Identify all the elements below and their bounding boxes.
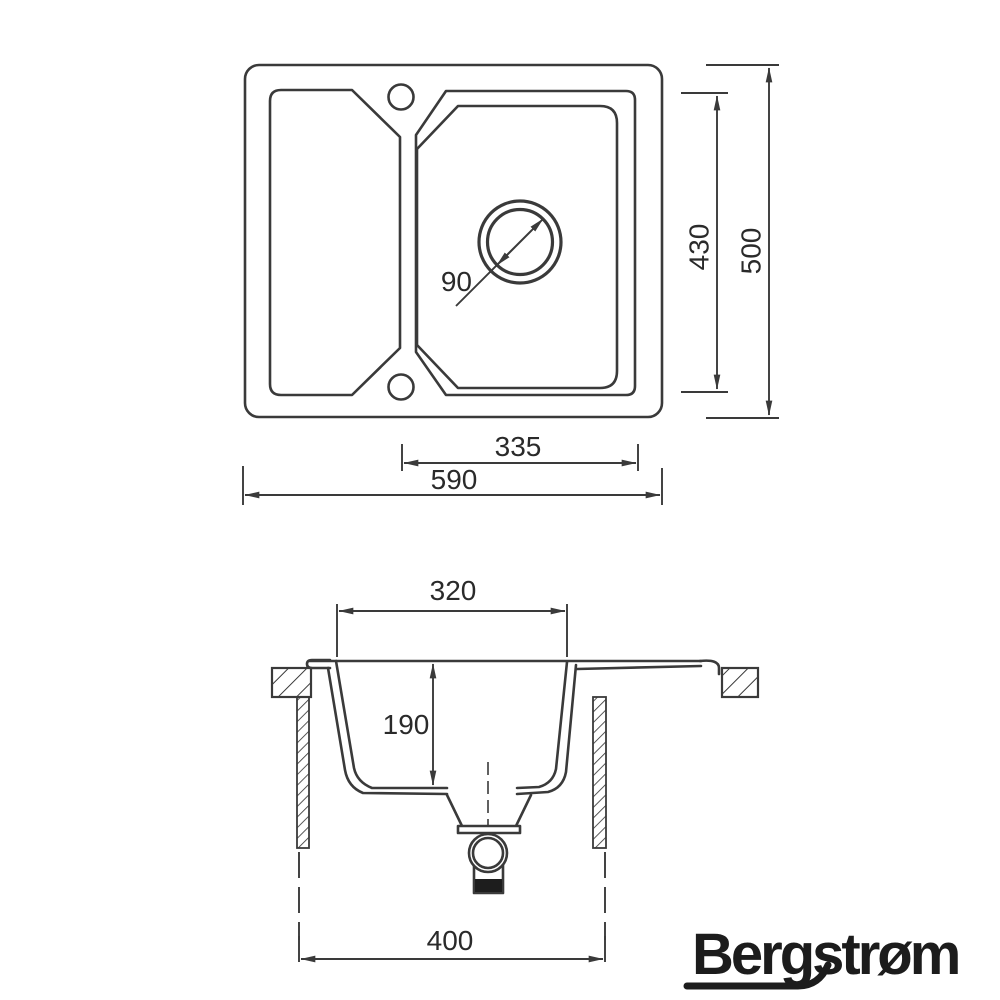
tap-hole-top [389,85,414,110]
dim-overall-width: 590 [243,464,662,505]
dim-bowl-width-label: 335 [495,431,542,462]
dim-drain-diameter-label: 90 [441,266,472,297]
siphon-cup-outer [469,834,507,872]
drawing-canvas: 90 430 500 335 590 [0,0,1000,1000]
sink-outer-edge [245,65,662,417]
cabinet-panel-left [297,697,309,848]
drain-assembly [447,795,531,893]
cabinet-panel-right [593,697,606,848]
dim-bowl-opening-label: 320 [430,575,477,606]
section-view: 320 190 400 [272,575,758,962]
brand-wordmark: Bergstrøm [692,922,958,987]
countertop-left [272,668,311,697]
dim-overall-width-label: 590 [431,464,478,495]
drainer-outline [270,90,400,395]
dim-bowl-depth: 190 [383,664,433,785]
dim-bowl-opening: 320 [337,575,567,657]
brand-logo: Bergstrøm [687,922,958,987]
strainer-flange [458,826,520,833]
tap-hole-bottom [389,375,414,400]
dim-bowl-length-label: 430 [684,224,715,271]
pipe-end-cap [475,879,502,892]
dim-bowl-length: 430 [681,93,728,392]
countertop-right [722,668,758,697]
sink-technical-drawing: 90 430 500 335 590 [0,0,1000,1000]
dim-cabinet-width-label: 400 [427,925,474,956]
dim-overall-depth-label: 500 [736,228,767,275]
dim-cabinet-width: 400 [301,925,603,959]
strainer-side-left [447,795,462,826]
sink-section-profile [307,660,719,794]
strainer-side-right [516,795,531,826]
dim-bowl-depth-label: 190 [383,709,430,740]
top-view: 90 430 500 335 590 [243,65,779,505]
